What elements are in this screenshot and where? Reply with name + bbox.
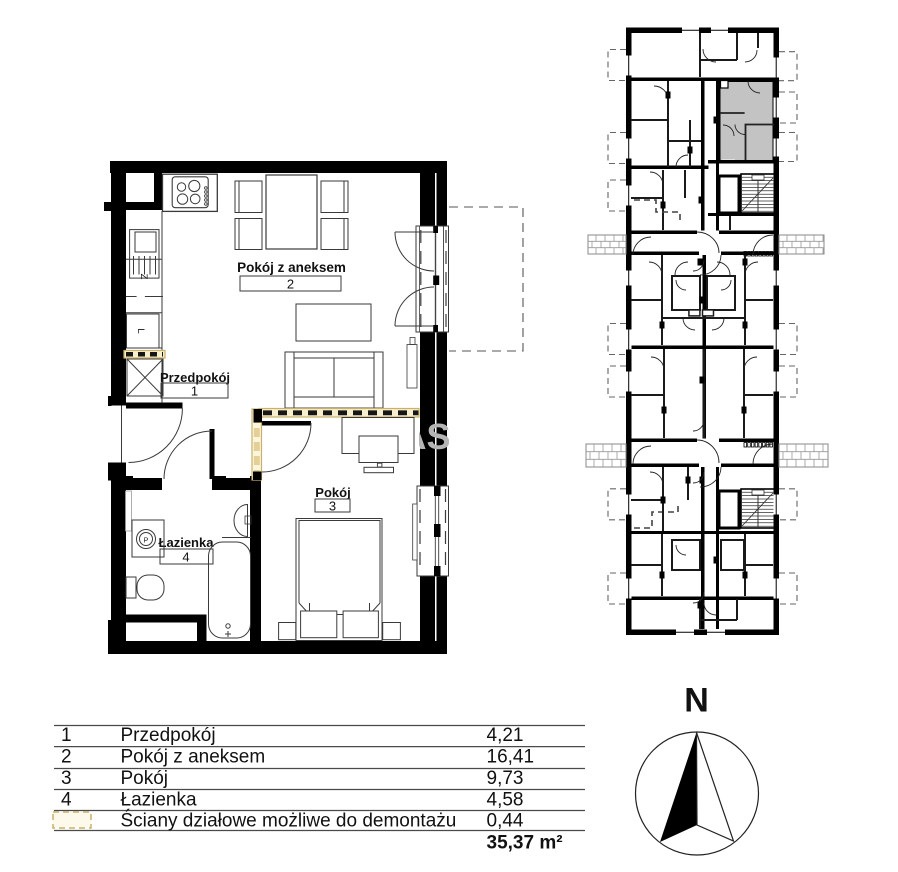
- svg-text:Pokój z aneksem: Pokój z aneksem: [237, 260, 346, 275]
- svg-text:2: 2: [287, 277, 294, 292]
- svg-text:P: P: [144, 538, 149, 545]
- svg-text:3: 3: [329, 499, 336, 514]
- svg-text:4: 4: [61, 789, 72, 810]
- svg-text:35,37 m²: 35,37 m²: [487, 833, 563, 854]
- svg-text:L: L: [135, 328, 146, 333]
- svg-text:4: 4: [182, 550, 189, 565]
- svg-text:1: 1: [191, 384, 198, 399]
- svg-text:4,58: 4,58: [487, 789, 524, 810]
- svg-text:N: N: [684, 682, 709, 720]
- svg-text:9,73: 9,73: [487, 768, 524, 789]
- svg-text:Ściany działowe możliwe do dem: Ściany działowe możliwe do demontażu: [121, 810, 457, 832]
- svg-text:Łazienka: Łazienka: [159, 535, 215, 550]
- svg-text:Łazienka: Łazienka: [121, 789, 197, 810]
- svg-text:2: 2: [61, 747, 72, 768]
- svg-text:3: 3: [61, 768, 72, 789]
- svg-text:Pokój z aneksem: Pokój z aneksem: [121, 747, 266, 768]
- svg-text:4,21: 4,21: [487, 725, 524, 746]
- svg-text:Pokój: Pokój: [121, 768, 169, 789]
- svg-text:16,41: 16,41: [487, 747, 535, 768]
- svg-text:1: 1: [61, 725, 72, 746]
- svg-text:Przedpokój: Przedpokój: [121, 725, 216, 746]
- svg-text:0,44: 0,44: [487, 811, 524, 832]
- svg-text:Z: Z: [138, 274, 149, 280]
